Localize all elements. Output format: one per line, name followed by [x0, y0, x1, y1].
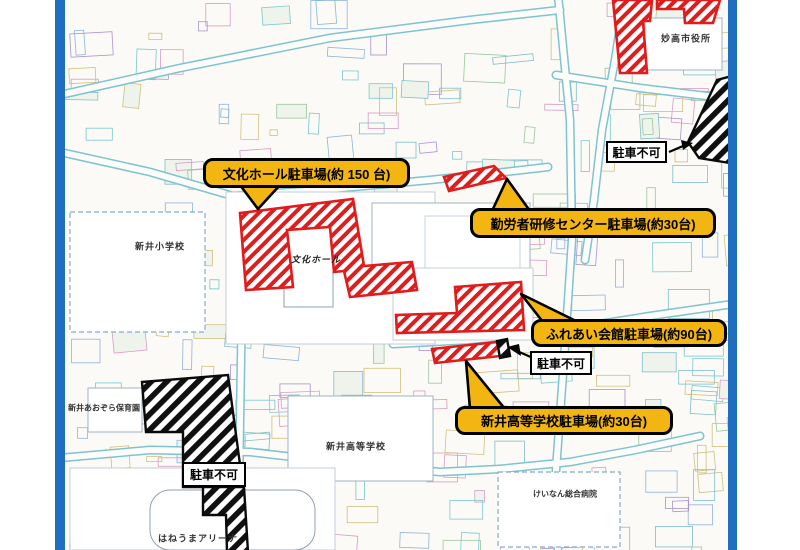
facility-label-high-school: 新井高等学校 [326, 440, 386, 453]
facility-label-nursery: 新井あおぞら保育園 [68, 403, 140, 414]
label-overlay: 文化ホール駐車場(約 150 台) 勤労者研修センター駐車場(約30台) ふれあ… [0, 0, 800, 550]
no-parking-box-cityhall: 駐車不可 [606, 141, 667, 163]
facility-label-city-hall: 妙高市役所 [661, 32, 711, 45]
facility-label-culture-hall: 文化ホール [291, 253, 341, 266]
bubble-bunka-hall-parking: 文化ホール駐車場(約 150 台) [203, 158, 410, 188]
facility-label-arena: はねうまアリーナ [158, 532, 238, 545]
bubble-arai-high-school-parking: 新井高等学校駐車場(約30台) [455, 406, 673, 435]
facility-label-elementary-school: 新井小学校 [135, 240, 185, 253]
parking-map-page: { "colors": { "frame_blue": "#1e6fc0", "… [0, 0, 800, 550]
no-parking-box-fureai: 駐車不可 [530, 351, 592, 375]
bubble-fureai-hall-parking: ふれあい会館駐車場(約90台) [531, 319, 727, 347]
bubble-kinro-center-parking: 勤労者研修センター駐車場(約30台) [470, 208, 716, 238]
no-parking-box-arena: 駐車不可 [182, 462, 246, 487]
facility-label-hospital: けいなん総合病院 [533, 489, 597, 500]
